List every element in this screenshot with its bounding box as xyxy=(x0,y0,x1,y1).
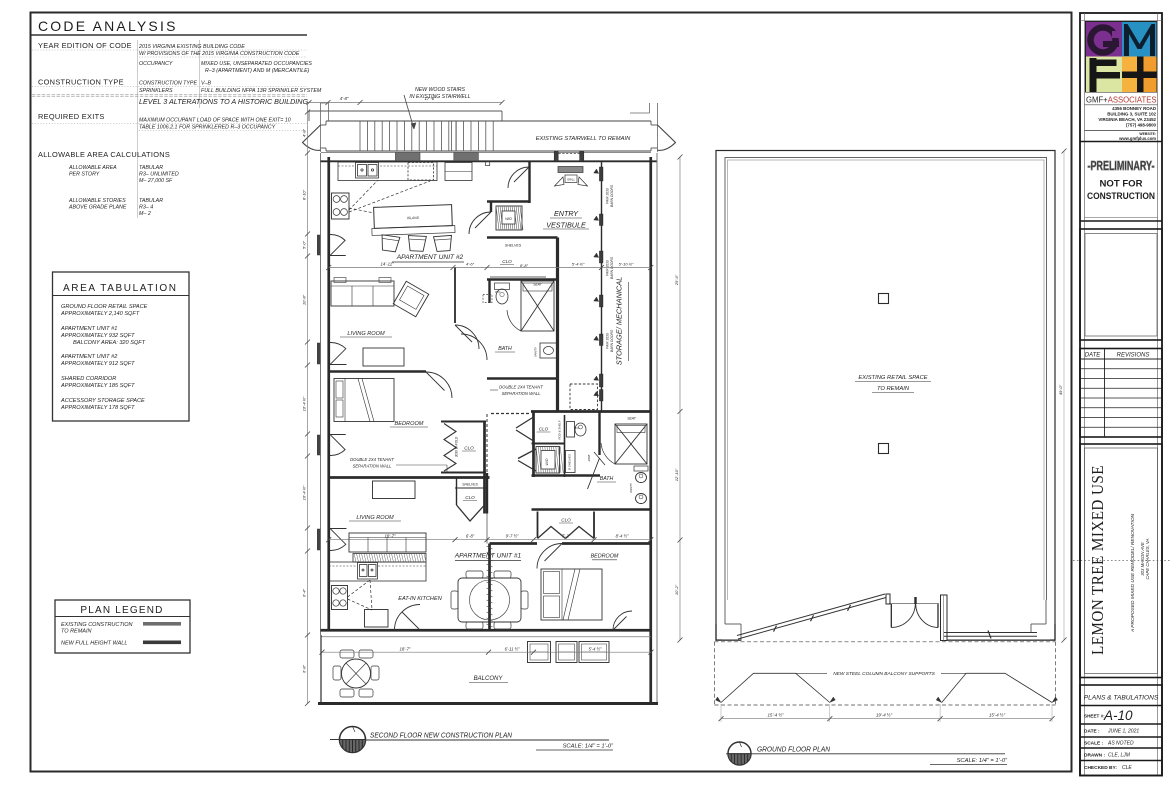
svg-text:ISLAND: ISLAND xyxy=(407,216,420,220)
svg-text:R3– UNLIMITED: R3– UNLIMITED xyxy=(139,172,179,178)
svg-text:DATE :: DATE : xyxy=(1084,729,1100,735)
svg-text:www.gmfplus.com: www.gmfplus.com xyxy=(1118,136,1156,141)
svg-text:BEDROOM: BEDROOM xyxy=(395,421,424,427)
svg-text:LEVEL 3 ALTERATIONS TO A HISTO: LEVEL 3 ALTERATIONS TO A HISTORIC BUILDI… xyxy=(139,97,308,106)
svg-text:VESTIBULE: VESTIBULE xyxy=(546,221,586,230)
svg-text:SCALE: 1/4” = 1’-0”: SCALE: 1/4” = 1’-0” xyxy=(563,744,614,750)
svg-text:BATH: BATH xyxy=(498,346,512,352)
svg-text:BARN DOORS: BARN DOORS xyxy=(610,184,614,207)
svg-text:18’-7”: 18’-7” xyxy=(400,646,412,651)
svg-text:6’-8”: 6’-8” xyxy=(466,534,475,539)
svg-text:SEAT: SEAT xyxy=(533,283,543,287)
svg-text:CONSTRUCTION TYPE: CONSTRUCTION TYPE xyxy=(139,81,197,87)
svg-text:TO REMAIN: TO REMAIN xyxy=(877,386,910,392)
svg-text:GROUND FLOOR RETAIL SPACE: GROUND FLOOR RETAIL SPACE xyxy=(61,304,148,310)
svg-text:BARN DOORS: BARN DOORS xyxy=(610,329,614,352)
svg-text:15’-4 ½”: 15’-4 ½” xyxy=(767,713,784,718)
svg-text:APARTMENT UNIT #1: APARTMENT UNIT #1 xyxy=(60,326,117,332)
svg-text:3030 BI-FOLD: 3030 BI-FOLD xyxy=(455,436,459,457)
svg-text:5’-0”: 5’-0” xyxy=(302,240,307,249)
svg-text:V–B: V–B xyxy=(201,81,211,87)
svg-text:9’-7 ½”: 9’-7 ½” xyxy=(506,534,519,539)
svg-text:PER STORY: PER STORY xyxy=(69,172,100,178)
svg-text:CONSTRUCTION TYPE: CONSTRUCTION TYPE xyxy=(38,78,124,87)
svg-text:6’-8”: 6’-8” xyxy=(302,664,307,673)
svg-text:TABULAR: TABULAR xyxy=(139,198,163,204)
svg-text:CLE, LJM: CLE, LJM xyxy=(1108,753,1131,759)
svg-text:SCALE: 1/4” = 1’-0”: SCALE: 1/4” = 1’-0” xyxy=(957,758,1008,764)
svg-text:4356 BONNEY ROAD: 4356 BONNEY ROAD xyxy=(1112,106,1156,111)
svg-text:5’-4 ½”: 5’-4 ½” xyxy=(589,646,602,651)
svg-text:W/ PROVISIONS OF THE 2015 VIRG: W/ PROVISIONS OF THE 2015 VIRGINIA CONST… xyxy=(139,51,300,57)
svg-text:NEW WOOD STAIRS: NEW WOOD STAIRS xyxy=(415,87,466,93)
svg-text:SHELVES: SHELVES xyxy=(505,243,522,247)
svg-text:BALCONY AREA: 320 SQFT: BALCONY AREA: 320 SQFT xyxy=(73,340,146,346)
svg-text:APPROXIMATELY 2,140 SQFT: APPROXIMATELY 2,140 SQFT xyxy=(60,311,140,317)
svg-text:A PROPOSED MIXED USE REMODEL/: A PROPOSED MIXED USE REMODEL/ RENOVATION xyxy=(1130,513,1136,633)
svg-text:ACCESSORY STORAGE SPACE: ACCESSORY STORAGE SPACE xyxy=(60,398,145,404)
svg-text:5’-4 ½”: 5’-4 ½” xyxy=(572,261,585,266)
svg-text:SCALE :: SCALE : xyxy=(1084,741,1104,747)
svg-text:DATE: DATE xyxy=(1085,353,1102,359)
svg-text:APPROXIMATELY 185 SQFT: APPROXIMATELY 185 SQFT xyxy=(60,383,135,389)
svg-text:NEW STEEL COLUMN BALCONY SUPPO: NEW STEEL COLUMN BALCONY SUPPORTS xyxy=(833,671,935,677)
svg-text:REQUIRED EXITS: REQUIRED EXITS xyxy=(38,112,105,121)
svg-text:NOT FOR: NOT FOR xyxy=(1100,179,1143,189)
svg-text:ALLOWABLE STORIES: ALLOWABLE STORIES xyxy=(68,198,126,204)
svg-text:APARTMENT UNIT #2: APARTMENT UNIT #2 xyxy=(396,254,464,261)
svg-text:GMF+ASSOCIATES: GMF+ASSOCIATES xyxy=(1086,95,1157,105)
svg-text:NEW FULL HEIGHT WALL: NEW FULL HEIGHT WALL xyxy=(61,641,127,647)
svg-text:GRILL: GRILL xyxy=(567,178,576,182)
svg-text:OCCUPANCY: OCCUPANCY xyxy=(139,61,173,67)
svg-text:4’-6”: 4’-6” xyxy=(466,261,475,266)
svg-text:VIRGINIA BEACH, VA 23452: VIRGINIA BEACH, VA 23452 xyxy=(1098,117,1156,122)
svg-text:M– 2: M– 2 xyxy=(139,211,151,217)
svg-text:CLE: CLE xyxy=(1122,765,1132,771)
svg-text:SPRINKLERS: SPRINKLERS xyxy=(139,88,173,94)
svg-text:10’-2”: 10’-2” xyxy=(674,584,679,595)
svg-text:SEPARATION WALL: SEPARATION WALL xyxy=(353,464,393,469)
svg-text:APPROXIMATELY 912 SQFT: APPROXIMATELY 912 SQFT xyxy=(60,361,135,367)
svg-text:CODE ANALYSIS: CODE ANALYSIS xyxy=(38,18,178,34)
svg-text:15’-4 ½”: 15’-4 ½” xyxy=(989,713,1006,718)
svg-text:8’-4 ½”: 8’-4 ½” xyxy=(616,534,629,539)
svg-text:SEAT: SEAT xyxy=(627,417,637,421)
svg-text:TABLE 1006.2.1 FOR SPRINKLERED: TABLE 1006.2.1 FOR SPRINKLERED R–3 OCCUP… xyxy=(139,125,276,131)
svg-text:LEMON TREE MIXED USE: LEMON TREE MIXED USE xyxy=(1088,465,1107,655)
svg-text:49’-0”: 49’-0” xyxy=(1058,384,1063,395)
svg-text:STORAGE/ MECHANICAL: STORAGE/ MECHANICAL xyxy=(615,277,624,366)
svg-text:YEAR EDITION OF CODE: YEAR EDITION OF CODE xyxy=(38,41,132,50)
svg-text:6’-4”: 6’-4” xyxy=(302,588,307,597)
svg-text:EXISTING STAIRWELL TO REMAIN: EXISTING STAIRWELL TO REMAIN xyxy=(536,136,631,142)
svg-text:W/D: W/D xyxy=(545,458,549,465)
svg-text:16’-4 ½”: 16’-4 ½” xyxy=(302,396,307,411)
svg-text:ROD & SHELF: ROD & SHELF xyxy=(558,420,562,440)
svg-text:SHARED CORRIDOR: SHARED CORRIDOR xyxy=(61,376,116,382)
svg-text:(757) 498-9800: (757) 498-9800 xyxy=(1126,123,1157,128)
svg-text:25’-6”: 25’-6” xyxy=(674,274,679,286)
svg-text:CLO: CLO xyxy=(465,495,475,500)
svg-text:SHELVES: SHELVES xyxy=(462,483,478,487)
svg-text:R3– 4: R3– 4 xyxy=(139,205,153,211)
svg-text:EXISTING CONSTRUCTION: EXISTING CONSTRUCTION xyxy=(61,622,133,628)
svg-text:CLO: CLO xyxy=(539,427,549,432)
svg-text:ENTRY: ENTRY xyxy=(554,209,579,218)
svg-text:ALLOWABLE AREA: ALLOWABLE AREA xyxy=(68,165,117,171)
svg-text:5’-10 ½”: 5’-10 ½” xyxy=(619,261,634,266)
svg-text:W.C.: W.C. xyxy=(574,426,580,430)
svg-text:CAPE CHARLES, VA: CAPE CHARLES, VA xyxy=(1145,538,1150,579)
svg-text:ALLOWABLE AREA CALCULATIONS: ALLOWABLE AREA CALCULATIONS xyxy=(38,150,170,159)
svg-text:2015 VIRGINIA EXISTING BUILDIN: 2015 VIRGINIA EXISTING BUILDING CODE xyxy=(138,44,245,50)
svg-text:BUILDING 3, SUITE 102: BUILDING 3, SUITE 102 xyxy=(1107,112,1156,117)
svg-text:GROUND FLOOR PLAN: GROUND FLOOR PLAN xyxy=(757,745,831,754)
svg-text:TO REMAIN: TO REMAIN xyxy=(61,629,91,635)
svg-text:W.C.: W.C. xyxy=(495,290,501,294)
svg-text:APPROXIMATELY 178 SQFT: APPROXIMATELY 178 SQFT xyxy=(60,405,135,411)
svg-text:DRAWN :: DRAWN : xyxy=(1084,753,1105,759)
svg-text:AS NOTED: AS NOTED xyxy=(1107,741,1134,747)
svg-text:AREA TABULATION: AREA TABULATION xyxy=(63,283,178,294)
svg-text:CONSTRUCTION: CONSTRUCTION xyxy=(1087,191,1155,201)
svg-text:EXISTING RETAIL SPACE: EXISTING RETAIL SPACE xyxy=(858,375,927,381)
svg-text:ABOVE GRADE PLANE: ABOVE GRADE PLANE xyxy=(68,205,127,211)
svg-text:B SHELVES: B SHELVES xyxy=(568,454,572,470)
svg-text:BATH: BATH xyxy=(600,476,614,482)
svg-text:IN EXISTING STAIRWELL: IN EXISTING STAIRWELL xyxy=(409,94,470,100)
svg-text:CLO: CLO xyxy=(502,259,512,264)
svg-text:4’-8”: 4’-8” xyxy=(302,128,307,137)
svg-text:4’-8”: 4’-8” xyxy=(340,96,349,101)
svg-text:PLAN LEGEND: PLAN LEGEND xyxy=(80,605,163,616)
svg-text:SHEET #:: SHEET #: xyxy=(1084,714,1105,719)
svg-text:SEPARATION WALL: SEPARATION WALL xyxy=(502,391,542,396)
svg-text:VANITY: VANITY xyxy=(629,482,633,493)
svg-text:7’-2”: 7’-2” xyxy=(562,534,571,539)
svg-text:DOUBLE 2X4 TENANT: DOUBLE 2X4 TENANT xyxy=(499,385,543,390)
svg-text:16’-4 ½”: 16’-4 ½” xyxy=(302,485,307,500)
svg-text:8’-10”: 8’-10” xyxy=(302,189,307,200)
svg-text:2068: 2068 xyxy=(587,454,591,462)
svg-text:LIVING ROOM: LIVING ROOM xyxy=(356,515,394,521)
svg-text:BEDROOM: BEDROOM xyxy=(591,554,619,560)
svg-text:DOUBLE 2X4 TENANT: DOUBLE 2X4 TENANT xyxy=(350,457,394,462)
svg-text:12’-10”: 12’-10” xyxy=(674,468,679,481)
svg-text:MIXED USE, UNSEPARATED OCCUPAN: MIXED USE, UNSEPARATED OCCUPANCIES xyxy=(201,61,312,67)
svg-text:R–3 (APARTMENT) AND M (MERCANT: R–3 (APARTMENT) AND M (MERCANTILE) xyxy=(205,68,310,74)
svg-text:VANITY: VANITY xyxy=(534,346,538,357)
svg-text:REVISIONS: REVISIONS xyxy=(1117,353,1150,359)
svg-text:CLO: CLO xyxy=(561,518,571,523)
svg-text:CHECKED BY:: CHECKED BY: xyxy=(1084,765,1117,771)
svg-text:EAT-IN KITCHEN: EAT-IN KITCHEN xyxy=(398,596,442,602)
svg-text:MAXIMUM OCCUPANT LOAD OF SPACE: MAXIMUM OCCUPANT LOAD OF SPACE WITH ONE … xyxy=(139,118,291,124)
svg-text:JUNE 1, 2021: JUNE 1, 2021 xyxy=(1107,729,1139,735)
svg-text:A-10: A-10 xyxy=(1103,708,1133,723)
svg-text:CLO: CLO xyxy=(464,446,474,451)
svg-text:6’-11 ½”: 6’-11 ½” xyxy=(505,646,520,651)
svg-text:PLANS & TABULATIONS: PLANS & TABULATIONS xyxy=(1084,695,1159,702)
svg-text:FULL BUILDING NFPA 13R SPRINKL: FULL BUILDING NFPA 13R SPRINKLER SYSTEM xyxy=(201,88,322,94)
svg-text:APARTMENT UNIT #2: APARTMENT UNIT #2 xyxy=(60,354,118,360)
svg-text:SECOND FLOOR NEW CONSTRUCTION: SECOND FLOOR NEW CONSTRUCTION PLAN xyxy=(370,731,513,740)
svg-text:APPROXIMATELY 932 SQFT: APPROXIMATELY 932 SQFT xyxy=(60,333,135,339)
svg-text:LIVING ROOM: LIVING ROOM xyxy=(347,331,385,337)
svg-text:W/D: W/D xyxy=(505,217,512,221)
svg-text:10’-8”: 10’-8” xyxy=(302,294,307,305)
svg-text:M– 27,000 SF: M– 27,000 SF xyxy=(139,178,173,184)
svg-text:19’-4 ½”: 19’-4 ½” xyxy=(876,713,893,718)
svg-text:-PRELIMINARY-: -PRELIMINARY- xyxy=(1088,159,1155,173)
svg-text:TABULAR: TABULAR xyxy=(139,165,163,171)
svg-text:BALCONY: BALCONY xyxy=(474,676,504,682)
